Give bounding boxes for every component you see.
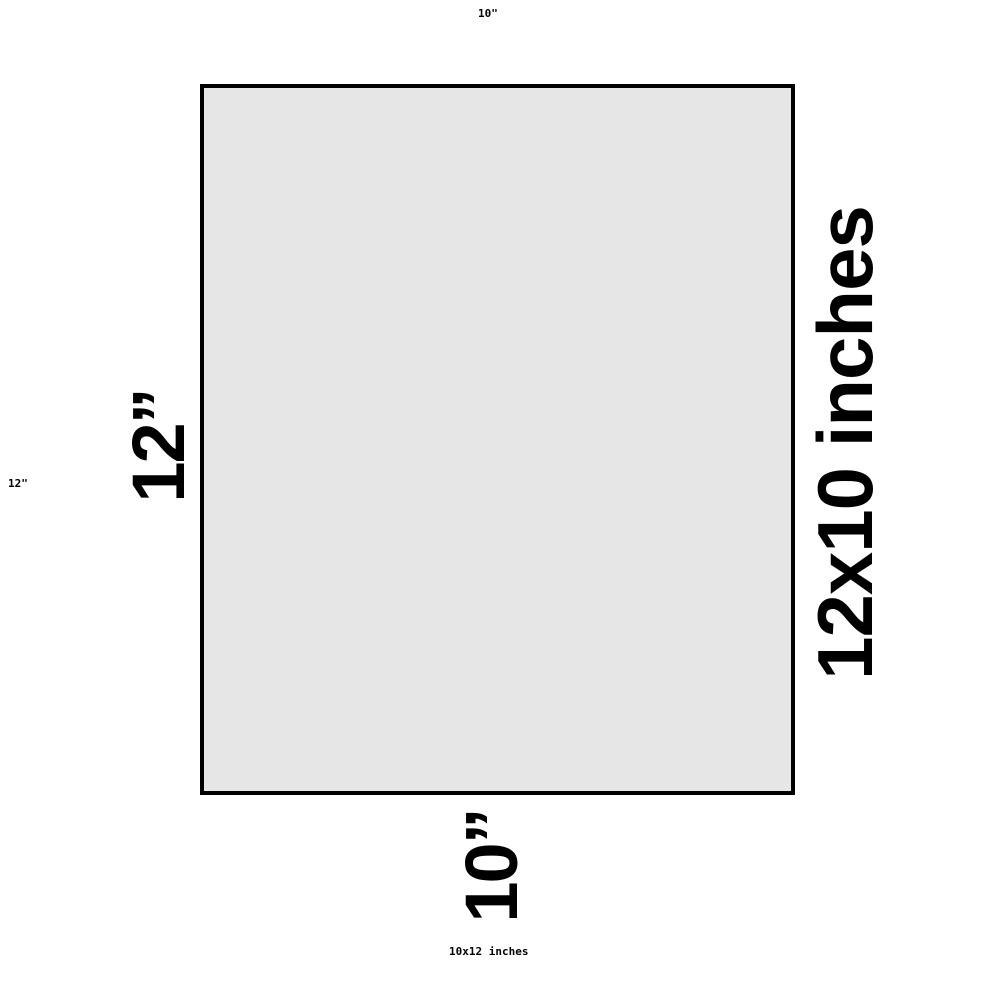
bottom-margin-label: 10x12 inches [449,946,528,958]
dimension-diagram: 12” 10” 12x10 inches 10" 12" 10x12 inche… [0,0,1000,1000]
size-dimension-label: 12x10 inches [806,206,884,680]
left-margin-label: 12" [8,478,28,490]
width-dimension-label: 10” [455,809,529,922]
height-dimension-label: 12” [122,389,196,502]
dimension-rectangle [200,84,795,795]
top-margin-label: 10" [478,8,498,20]
